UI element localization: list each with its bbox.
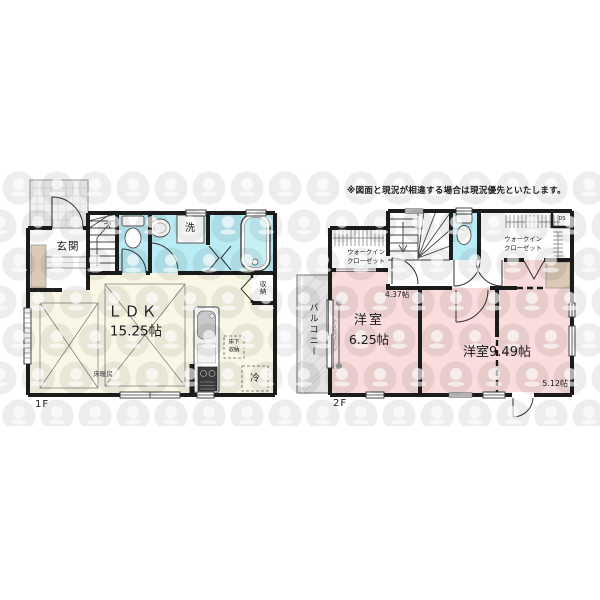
bathtub-icon — [241, 214, 270, 271]
floor1-label: 1F — [35, 399, 49, 412]
balcony-label: バルコニー — [306, 303, 317, 358]
bedroom1-size-label: 6.25帖 — [349, 332, 389, 348]
duct-space-label: DS — [558, 216, 565, 222]
bedroom2-sub-size1-label: 4.37帖 — [385, 290, 409, 299]
bedroom2-sub-size2-label: 5.12帖 — [538, 379, 568, 389]
disclaimer-note: ※図面と現況が相違する場合は現況優先といたします。 — [347, 186, 566, 197]
storage-label: 収納 — [258, 281, 266, 296]
kitchen-counter — [192, 307, 219, 394]
refrigerator-label: 冷 — [250, 373, 260, 385]
hall-floor-2f — [388, 260, 504, 288]
floorplan-page: ※図面と現況が相違する場合は現況優先といたします。 玄関 洗 ＬＤＫ 15.25… — [0, 0, 600, 600]
builtin-cabinet — [546, 262, 570, 288]
porch-tile — [30, 180, 88, 228]
ldk-size-label: 15.25帖 — [110, 324, 162, 341]
entrance-label: 玄関 — [57, 240, 80, 253]
toilet-icon-2f — [456, 214, 472, 245]
wic-left-label-2: クローゼット — [347, 258, 385, 266]
wic-right-label-2: クローゼット — [504, 245, 542, 253]
underfloor-storage-label-2: 収納 — [228, 348, 239, 355]
bedroom1-name-label: 洋室 — [354, 313, 384, 329]
laundry-pole-label: ホスクリーン — [330, 319, 337, 352]
ldk-name-label: ＬＤＫ — [107, 303, 158, 322]
floor2-label: 2F — [333, 398, 347, 411]
laundry-label: 洗 — [185, 223, 195, 236]
floor-heating-label: 床暖房 — [93, 370, 113, 378]
stove-icon — [198, 367, 217, 391]
floor1-drawing — [24, 180, 275, 398]
underfloor-storage-label-1: 床下 — [228, 340, 239, 347]
stairs-1f — [88, 213, 117, 266]
wic-left-label-1: ウォークイン — [347, 249, 385, 257]
wic-right-label-1: ウォークイン — [504, 236, 542, 244]
floorplan-drawing — [0, 0, 600, 600]
bedroom2-label: 洋室9.49帖 — [463, 345, 531, 361]
